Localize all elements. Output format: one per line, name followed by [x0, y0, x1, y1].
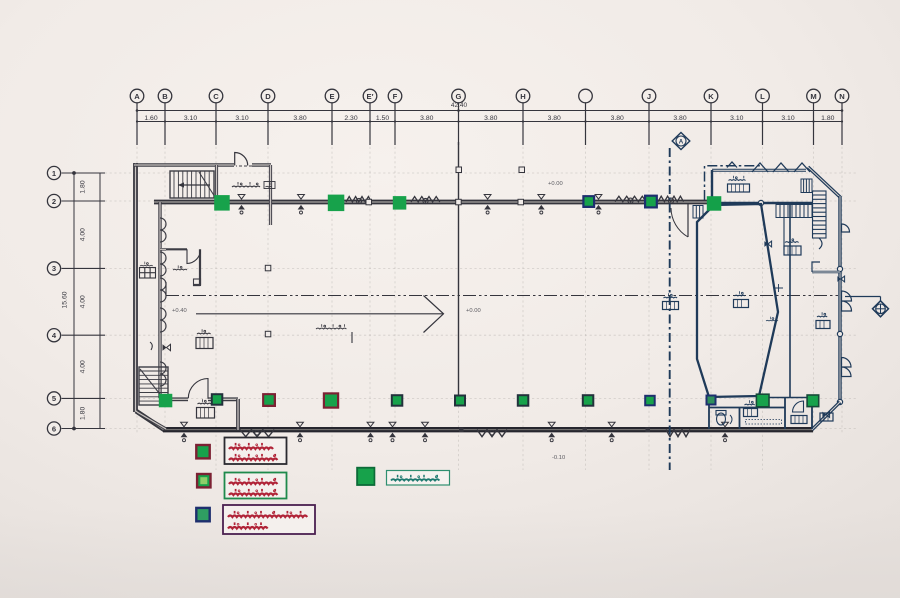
svg-text:F: F [393, 92, 398, 101]
svg-text:4.00: 4.00 [80, 360, 87, 373]
svg-text:N: N [839, 92, 844, 101]
svg-text:K: K [708, 92, 714, 101]
svg-text:A: A [679, 139, 684, 146]
svg-text:15.60: 15.60 [62, 291, 69, 308]
svg-text:4.00: 4.00 [80, 295, 87, 308]
svg-text:3.10: 3.10 [730, 115, 743, 122]
svg-text:1.50: 1.50 [376, 115, 389, 122]
svg-text:E: E [329, 92, 334, 101]
svg-text:D: D [265, 92, 271, 101]
svg-text:6: 6 [52, 424, 56, 433]
svg-text:3.80: 3.80 [420, 115, 433, 122]
svg-text:3.80: 3.80 [548, 115, 561, 122]
svg-text:1.80: 1.80 [821, 115, 834, 122]
svg-text:3.80: 3.80 [484, 115, 497, 122]
svg-text:L: L [760, 92, 765, 101]
svg-text:3.10: 3.10 [235, 115, 248, 122]
svg-text:+0.00: +0.00 [466, 308, 481, 314]
svg-text:C: C [213, 92, 219, 101]
svg-text:B: B [162, 92, 168, 101]
svg-text:1.60: 1.60 [144, 115, 157, 122]
svg-text:1.80: 1.80 [80, 180, 87, 193]
svg-text:3.80: 3.80 [293, 115, 306, 122]
svg-text:1.80: 1.80 [80, 407, 87, 420]
svg-text:4.00: 4.00 [80, 228, 87, 241]
svg-text:G: G [456, 92, 462, 101]
svg-text:H: H [520, 92, 525, 101]
svg-text:2.30: 2.30 [344, 115, 357, 122]
svg-text:A: A [134, 92, 140, 101]
svg-text:3: 3 [52, 264, 56, 273]
svg-text:3.80: 3.80 [611, 115, 624, 122]
svg-text:J: J [647, 92, 651, 101]
svg-text:E′: E′ [367, 92, 374, 101]
svg-text:-0.10: -0.10 [552, 455, 565, 461]
svg-text:3.10: 3.10 [184, 115, 197, 122]
svg-text:2: 2 [52, 197, 56, 206]
svg-text:M: M [810, 92, 816, 101]
svg-text:+0.40: +0.40 [172, 308, 187, 314]
svg-text:3.80: 3.80 [673, 115, 686, 122]
svg-text:+0.00: +0.00 [548, 181, 563, 187]
svg-text:3.10: 3.10 [781, 115, 794, 122]
